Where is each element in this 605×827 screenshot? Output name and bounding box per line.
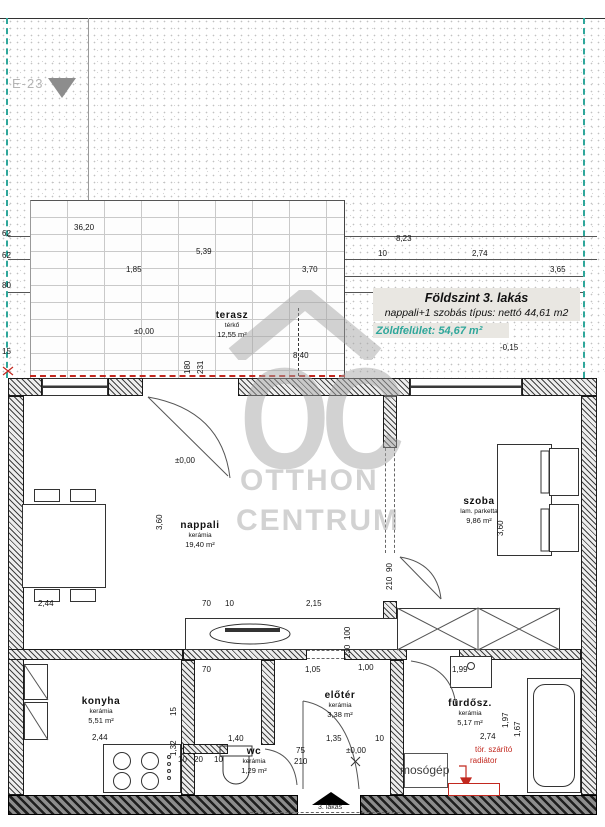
dimension-label: 20 <box>194 756 203 764</box>
green-boundary-left <box>6 18 8 378</box>
dimension-label: 80 <box>2 282 11 290</box>
entrance-axis <box>250 812 400 813</box>
wall-top-1 <box>8 378 42 396</box>
title-block: Földszint 3. lakás nappali+1 szobás típu… <box>373 288 580 321</box>
room-rarea: 19,40 m² <box>180 540 219 549</box>
dimension-label: 2,44 <box>38 600 54 608</box>
dimension-label: 1,85 <box>126 266 142 274</box>
room-label-eloter: előtérkerámia3,38 m² <box>325 690 356 719</box>
room-label-szoba: szobalam. parketta9,86 m² <box>460 496 498 525</box>
wall-mid-1 <box>8 649 183 660</box>
dimension-label: 210 <box>294 758 307 766</box>
room-rname: előtér <box>325 690 356 701</box>
dimension-label: 8,23 <box>396 235 412 243</box>
radiator-label-line1: tör. szárító <box>475 746 512 754</box>
wall-wc-stub <box>183 744 228 754</box>
dimension-label: 1,99 <box>452 666 468 674</box>
dimension-label: 90 <box>386 563 394 572</box>
terrace-door-opening <box>143 378 238 396</box>
dimension-label: 10 <box>178 756 187 764</box>
dimension-label: 2,74 <box>480 733 496 741</box>
dimension-label: 2,44 <box>92 734 108 742</box>
room-rarea: 3,38 m² <box>325 710 356 719</box>
dimension-label: 210 <box>386 577 394 590</box>
chair <box>34 489 60 502</box>
window-bedroom <box>410 378 522 396</box>
dimension-label: 10 <box>378 250 387 258</box>
dining-table <box>22 504 106 588</box>
dimension-label: 1,32 <box>170 740 178 756</box>
chair <box>70 489 96 502</box>
green-area-row: Zöldfelület: 54,67 m² <box>373 323 509 338</box>
green-area-value: 54,67 m² <box>438 325 482 337</box>
unit-label: 3. lakás <box>318 804 342 811</box>
room-rfloor: kerámia <box>448 710 492 717</box>
room-label-konyha: konyhakerámia5,51 m² <box>82 696 121 725</box>
dimension-label: 15 <box>2 348 11 356</box>
dimension-label: 1,35 <box>326 735 342 743</box>
room-label-furdo: fürdősz.kerámia5,17 m² <box>448 698 492 727</box>
wall-dashed-1 <box>385 448 386 553</box>
dimension-label: 100 <box>344 627 352 640</box>
wall-top-3 <box>238 378 410 396</box>
dimension-label: 15 <box>170 707 178 716</box>
dimension-label: ±0,00 <box>346 747 366 755</box>
dimension-label: 1,97 <box>502 712 510 728</box>
north-triangle-icon <box>48 78 76 98</box>
room-rfloor: kerámia <box>180 532 219 539</box>
dimension-label: 1,00 <box>358 664 374 672</box>
wall-nappali-szoba-top <box>383 396 397 448</box>
apartment-subtitle: nappali+1 szobás típus: nettó 44,61 m2 <box>373 305 580 319</box>
room-rfloor: kerámia <box>325 702 356 709</box>
room-rfloor: kerámia <box>82 708 121 715</box>
kitchen-counter <box>185 618 407 650</box>
apartment-title: Földszint 3. lakás <box>373 288 580 305</box>
chair <box>70 589 96 602</box>
wardrobe <box>397 608 560 650</box>
room-label-wc: wckerámia1,29 m² <box>241 746 266 775</box>
dimension-label: 180 <box>184 361 192 374</box>
dimension-label: 3,65 <box>550 266 566 274</box>
dimension-label: 10 <box>375 735 384 743</box>
room-rarea: 5,17 m² <box>448 718 492 727</box>
dimension-label: 75 <box>296 747 305 755</box>
room-rfloor: térkő <box>216 322 249 329</box>
green-boundary-right <box>583 18 585 378</box>
wall-top-4 <box>522 378 597 396</box>
wall-mid-3 <box>344 649 407 660</box>
nightstand <box>549 448 579 496</box>
wall-top-2 <box>108 378 143 396</box>
wall-mid-2 <box>183 649 307 660</box>
dimension-label: 10 <box>225 600 234 608</box>
green-area-label: Zöldfelület: <box>376 325 435 337</box>
room-rarea: 1,29 m² <box>241 766 266 775</box>
wall-left <box>8 396 24 795</box>
room-rarea: 9,86 m² <box>460 516 498 525</box>
dimension-label: 8,40 <box>293 352 309 360</box>
room-rname: szoba <box>460 496 498 507</box>
dimension-label: ±0,00 <box>134 328 154 336</box>
dimension-label: 230 <box>344 645 352 658</box>
dimension-label: 62 <box>2 230 11 238</box>
dimension-label: 10 <box>214 756 223 764</box>
window-living <box>42 378 108 396</box>
dimension-label: -0,15 <box>500 344 518 352</box>
dimension-label: 2,15 <box>306 600 322 608</box>
washing-machine-label: mosógép <box>400 763 449 777</box>
dimension-label: 231 <box>197 361 205 374</box>
bed <box>497 444 552 556</box>
dimension-label: 1,40 <box>228 735 244 743</box>
dimension-label: 2,74 <box>472 250 488 258</box>
wall-right <box>581 396 597 795</box>
dimension-label: 70 <box>202 600 211 608</box>
wall-wc-eloter <box>261 660 275 745</box>
opening-lintel-top <box>307 650 344 651</box>
dimension-label: 3,70 <box>302 266 318 274</box>
room-label-terasz: terasztérkő12,55 m² <box>216 310 249 339</box>
room-rname: nappali <box>180 520 219 531</box>
room-rname: terasz <box>216 310 249 321</box>
opening-lintel-bottom <box>307 658 344 659</box>
bathtub-inner <box>533 684 575 787</box>
dimension-label: ±0,00 <box>175 457 195 465</box>
wall-konyha-wc <box>181 660 195 795</box>
dimension-label: 3,60 <box>497 520 505 536</box>
towel-radiator <box>448 783 500 796</box>
dimension-label: 70 <box>202 666 211 674</box>
nightstand <box>549 504 579 552</box>
floor-plan: E-23 Földszint 3. lakás nappali+1 szobás… <box>0 0 605 827</box>
radiator-label-line2: radiátor <box>470 757 497 765</box>
site-boundary-top <box>0 18 605 19</box>
dimension-label: 36,20 <box>74 224 94 232</box>
kitchen-cabinet <box>24 702 48 740</box>
dimension-label: 5,39 <box>196 248 212 256</box>
plan-code: E-23 <box>12 76 43 91</box>
room-rarea: 5,51 m² <box>82 716 121 725</box>
room-rname: konyha <box>82 696 121 707</box>
kitchen-cabinet <box>24 664 48 700</box>
dimension-label: 3,60 <box>156 514 164 530</box>
room-rname: wc <box>241 746 266 757</box>
dimension-label: 62 <box>2 252 11 260</box>
dimension-label: 1,05 <box>305 666 321 674</box>
room-rname: fürdősz. <box>448 698 492 709</box>
wall-dashed-2 <box>394 448 395 553</box>
room-rfloor: lam. parketta <box>460 508 498 515</box>
room-label-nappali: nappalikerámia19,40 m² <box>180 520 219 549</box>
room-rarea: 12,55 m² <box>216 330 249 339</box>
dimension-label: 1,67 <box>514 721 522 737</box>
terrace-measure-line <box>298 308 299 376</box>
room-rfloor: kerámia <box>241 758 266 765</box>
